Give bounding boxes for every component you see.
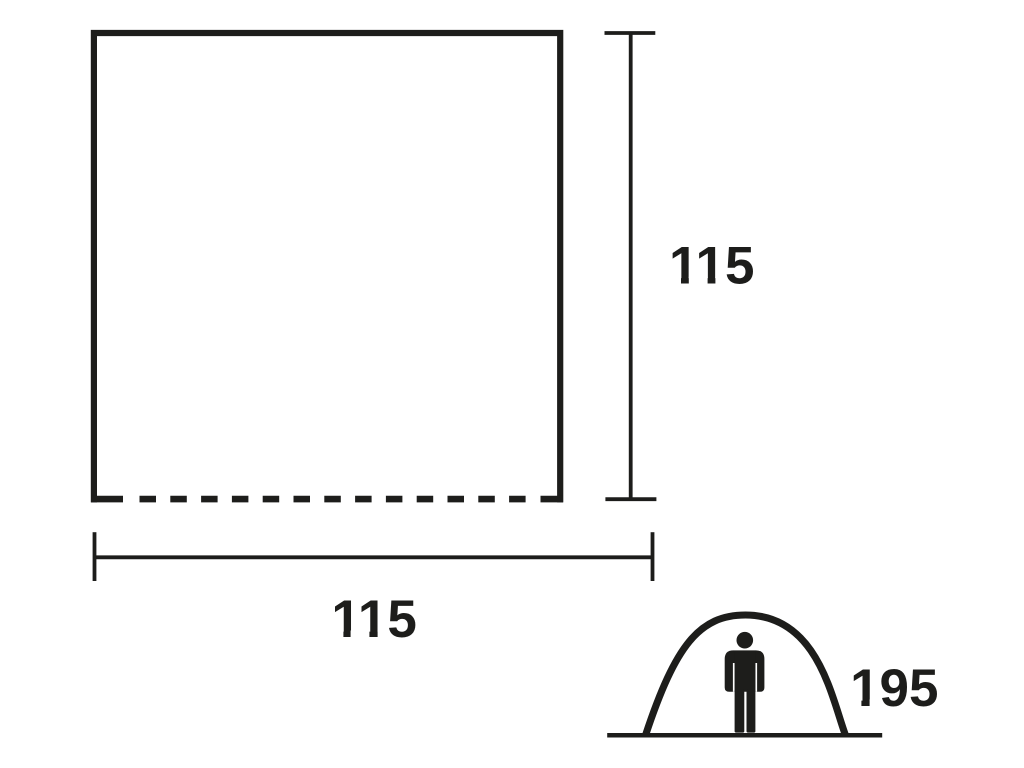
svg-text:115: 115 xyxy=(331,590,417,649)
svg-text:195: 195 xyxy=(850,659,938,718)
svg-text:115: 115 xyxy=(669,236,755,295)
